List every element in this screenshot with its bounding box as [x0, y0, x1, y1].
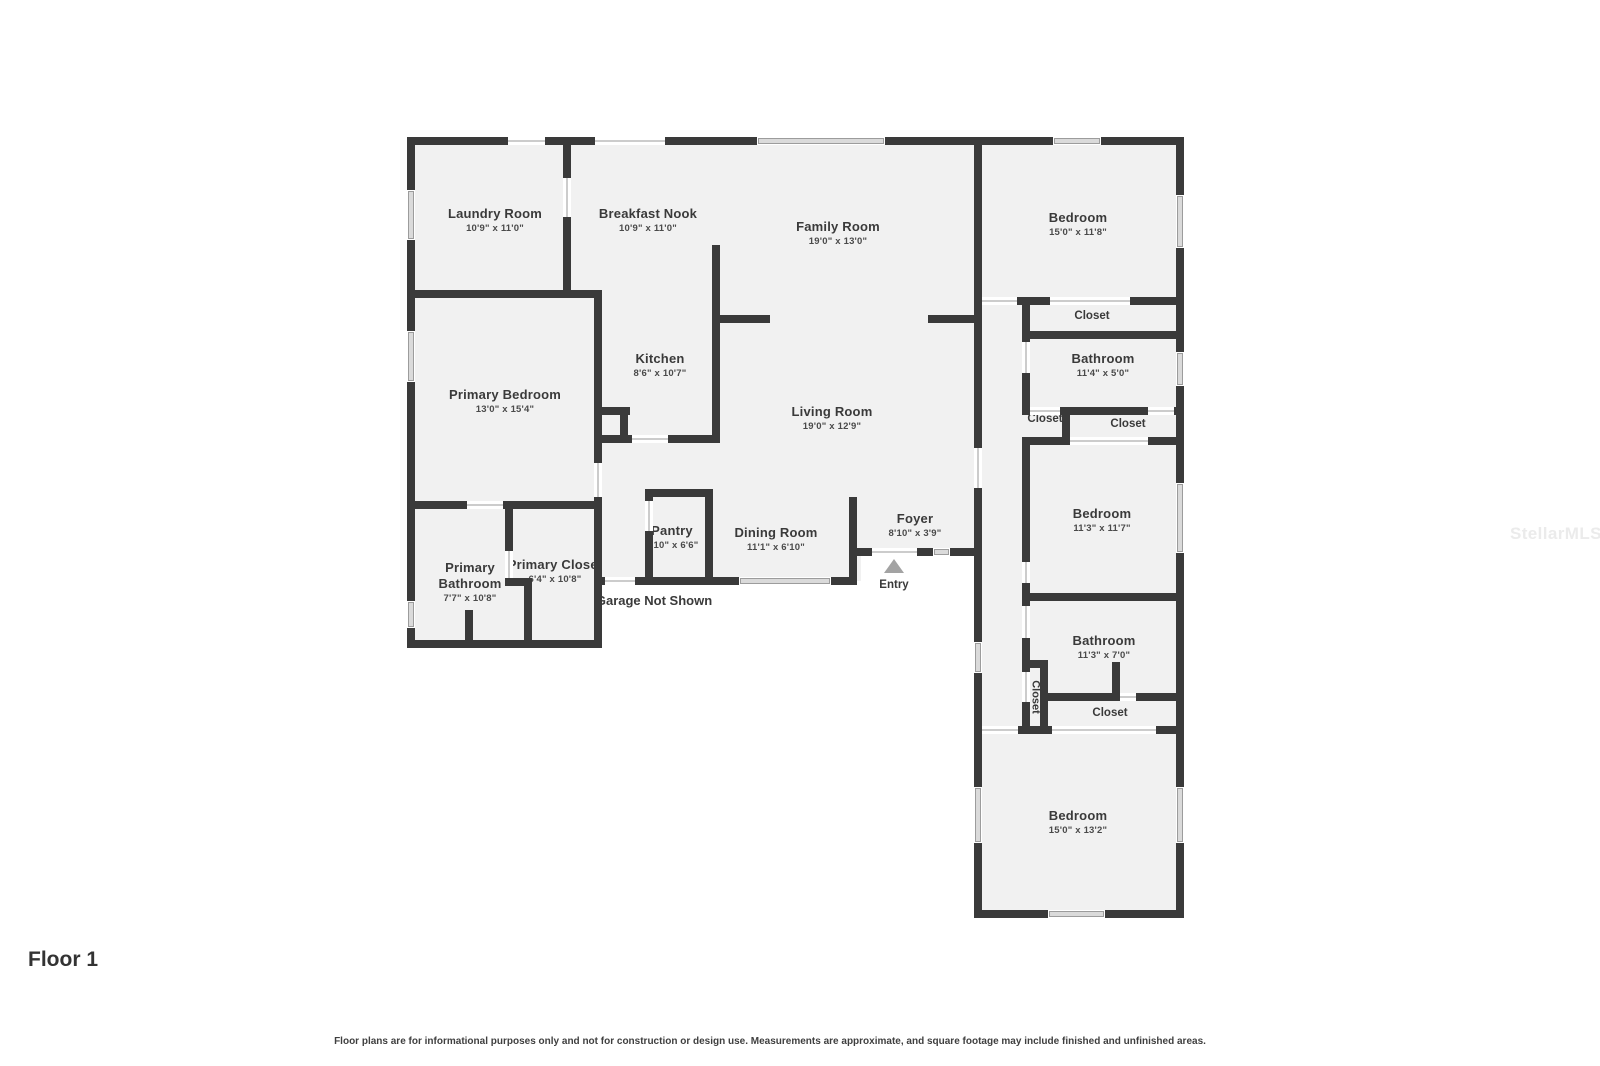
room-label-foyer: Foyer 8'10" x 3'9" — [889, 512, 942, 539]
window — [757, 137, 885, 145]
door-opening — [872, 548, 917, 556]
window-glass — [740, 578, 830, 584]
page: Laundry Room 10'9" x 11'0" Breakfast Noo… — [0, 0, 1600, 1066]
window-glass — [1177, 484, 1183, 552]
wall-segment — [1040, 660, 1048, 734]
window-glass — [975, 788, 981, 842]
room-label-closet-bottom: Closet — [1092, 708, 1127, 720]
window-glass — [1049, 911, 1104, 917]
opening-line — [508, 551, 510, 578]
window — [407, 601, 415, 628]
opening-line — [1148, 410, 1174, 412]
window-glass — [1177, 196, 1183, 247]
floor-plan: Laundry Room 10'9" x 11'0" Breakfast Noo… — [0, 0, 1600, 1066]
wall-segment — [407, 290, 602, 298]
wall-segment — [645, 489, 713, 497]
entry-label: Entry — [879, 579, 908, 591]
door-opening — [508, 137, 545, 145]
opening-line — [977, 448, 979, 488]
wall-segment — [705, 489, 713, 585]
opening-line — [1025, 672, 1027, 702]
opening-line — [1025, 342, 1027, 373]
door-opening — [605, 577, 635, 585]
door-opening — [1022, 672, 1030, 702]
door-opening — [974, 448, 982, 488]
window-glass — [934, 549, 949, 555]
door-opening — [1030, 407, 1060, 415]
opening-line — [595, 140, 665, 142]
wall-segment — [407, 640, 602, 648]
opening-line — [1025, 562, 1027, 583]
window-glass — [1054, 138, 1100, 144]
door-opening — [1050, 297, 1130, 305]
door-opening — [645, 501, 653, 531]
window — [1053, 137, 1101, 145]
door-opening — [594, 463, 602, 497]
door-opening — [982, 297, 1017, 305]
wall-segment — [1048, 693, 1184, 701]
window — [407, 190, 415, 240]
window — [974, 787, 982, 843]
room-label-closet-hall-left: Closet — [1027, 414, 1062, 426]
door-opening — [982, 726, 1018, 734]
opening-line — [566, 178, 568, 217]
room-label-family-room: Family Room 19'0" x 13'0" — [796, 220, 880, 247]
wall-segment — [524, 578, 532, 648]
door-opening — [632, 435, 668, 443]
door-opening — [1148, 407, 1174, 415]
door-opening — [1120, 693, 1136, 701]
room-label-bathroom-top: Bathroom 11'4" x 5'0" — [1072, 352, 1135, 379]
window-glass — [408, 191, 414, 239]
window — [1176, 195, 1184, 248]
opening-line — [1052, 729, 1156, 731]
room-label-bathroom-middle: Bathroom 11'3" x 7'0" — [1073, 634, 1136, 661]
wall-segment — [1022, 331, 1184, 339]
disclaimer-text: Floor plans are for informational purpos… — [334, 1036, 1206, 1047]
opening-line — [1120, 696, 1136, 698]
window-glass — [1177, 788, 1183, 842]
opening-line — [632, 438, 668, 440]
window-glass — [975, 643, 981, 672]
room-label-closet-hall-right: Closet — [1110, 419, 1145, 431]
wall-segment — [712, 245, 720, 443]
wall-segment — [1022, 593, 1184, 601]
window — [1176, 787, 1184, 843]
wall-segment — [505, 501, 513, 551]
room-label-laundry: Laundry Room 10'9" x 11'0" — [448, 207, 542, 234]
window-glass — [758, 138, 884, 144]
garage-note: Garage Not Shown — [596, 593, 712, 608]
door-opening — [1022, 342, 1030, 373]
wall-segment — [620, 407, 628, 443]
door-opening — [1052, 726, 1156, 734]
opening-line — [648, 501, 650, 531]
window-glass — [408, 602, 414, 627]
opening-line — [1050, 300, 1130, 302]
window-glass — [408, 332, 414, 381]
window-glass — [1177, 353, 1183, 385]
room-label-primary-bedroom: Primary Bedroom 13'0" x 15'4" — [449, 388, 561, 415]
window — [974, 642, 982, 673]
opening-line — [1070, 440, 1148, 442]
opening-line — [597, 463, 599, 497]
room-label-breakfast-nook: Breakfast Nook 10'9" x 11'0" — [599, 207, 697, 234]
door-opening — [467, 501, 503, 509]
wall-segment — [712, 315, 770, 323]
door-opening — [1070, 437, 1148, 445]
room-label-closet-vertical: Closet — [1030, 680, 1041, 714]
window — [933, 548, 950, 556]
window — [1048, 910, 1105, 918]
room-label-kitchen: Kitchen 8'6" x 10'7" — [634, 352, 687, 379]
opening-line — [1030, 410, 1060, 412]
watermark: StellarMLS — [1510, 524, 1600, 544]
opening-line — [982, 729, 1018, 731]
room-label-dining-room: Dining Room 11'1" x 6'10" — [734, 526, 817, 553]
room-label-closet-top: Closet — [1074, 311, 1109, 323]
window — [407, 331, 415, 382]
room-label-bedroom-bottom: Bedroom 15'0" x 13'2" — [1049, 809, 1107, 836]
room-label-primary-bathroom: Primary Bathroom 7'7" x 10'8" — [439, 561, 502, 604]
door-opening — [1022, 562, 1030, 583]
opening-line — [872, 551, 917, 553]
opening-line — [508, 140, 545, 142]
window — [1176, 352, 1184, 386]
floor-area — [853, 141, 980, 552]
opening-line — [605, 580, 635, 582]
room-label-pantry: Pantry 3'10" x 6'6" — [646, 524, 699, 551]
door-opening — [563, 178, 571, 217]
door-opening — [1022, 606, 1030, 638]
door-opening — [505, 551, 513, 578]
opening-line — [982, 300, 1017, 302]
room-label-bedroom-top: Bedroom 15'0" x 11'8" — [1049, 211, 1107, 238]
window — [1176, 483, 1184, 553]
opening-line — [1025, 606, 1027, 638]
window — [739, 577, 831, 585]
floor-title: Floor 1 — [28, 948, 98, 972]
wall-segment — [563, 137, 571, 298]
entry-arrow-icon — [884, 559, 904, 573]
wall-segment — [849, 497, 857, 585]
door-opening — [595, 137, 665, 145]
room-label-bedroom-middle: Bedroom 11'3" x 11'7" — [1073, 507, 1131, 534]
opening-line — [467, 504, 503, 506]
room-label-living-room: Living Room 19'0" x 12'9" — [792, 405, 873, 432]
